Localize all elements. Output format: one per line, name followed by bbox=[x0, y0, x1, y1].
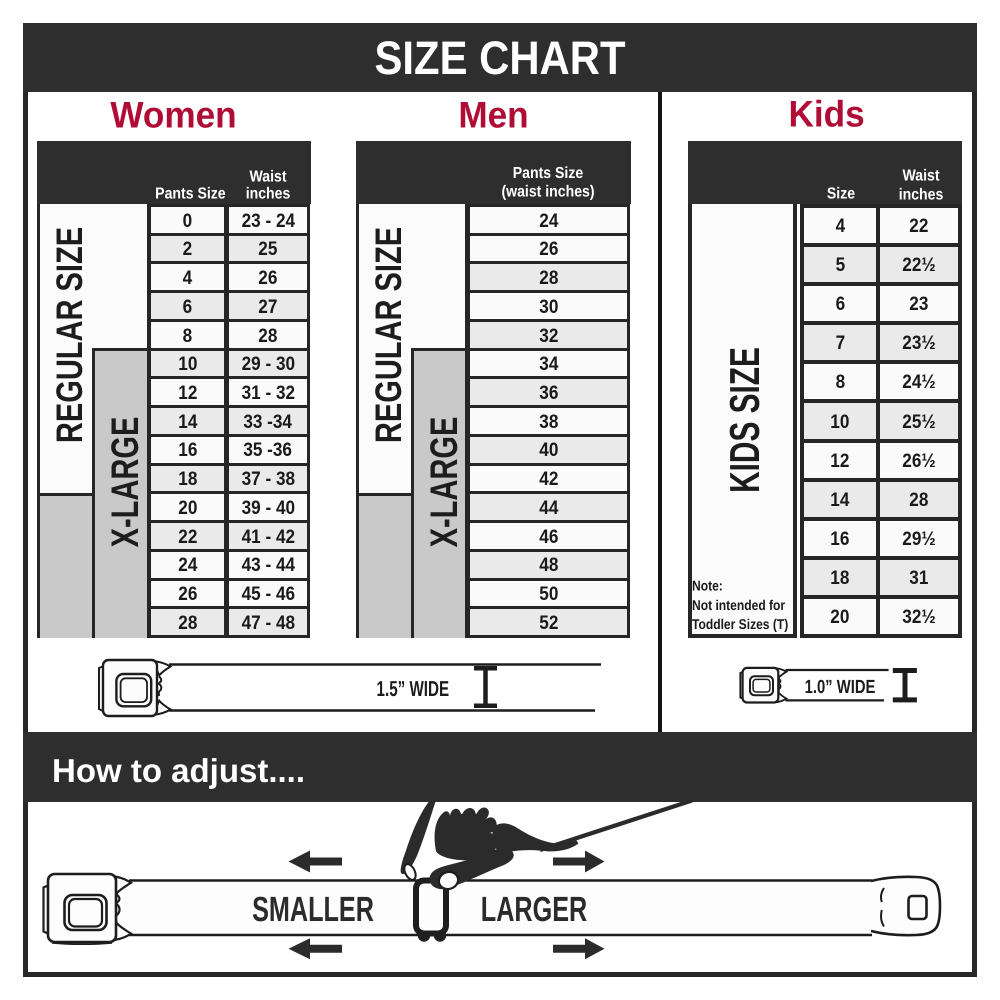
svg-text:Toddler Sizes (T): Toddler Sizes (T) bbox=[692, 617, 788, 633]
svg-text:X-LARGE: X-LARGE bbox=[423, 417, 466, 548]
svg-text:Waist: Waist bbox=[249, 169, 287, 186]
svg-text:Note:: Note: bbox=[692, 579, 723, 595]
svg-text:X-LARGE: X-LARGE bbox=[104, 417, 147, 548]
svg-text:inches: inches bbox=[899, 187, 944, 204]
svg-text:SMALLER: SMALLER bbox=[252, 890, 374, 929]
svg-text:Kids: Kids bbox=[789, 94, 865, 135]
svg-text:Men: Men bbox=[458, 95, 528, 136]
svg-text:1.5” WIDE: 1.5” WIDE bbox=[377, 676, 450, 701]
svg-text:Size: Size bbox=[827, 186, 855, 203]
svg-text:(waist inches): (waist inches) bbox=[501, 184, 594, 201]
svg-text:How to adjust....: How to adjust.... bbox=[52, 752, 305, 789]
svg-text:SIZE CHART: SIZE CHART bbox=[375, 31, 626, 84]
svg-text:Waist: Waist bbox=[902, 168, 940, 185]
svg-text:Pants Size: Pants Size bbox=[155, 186, 226, 203]
svg-text:Not intended for: Not intended for bbox=[692, 598, 786, 614]
svg-text:Women: Women bbox=[110, 95, 236, 136]
svg-text:LARGER: LARGER bbox=[481, 890, 587, 929]
svg-text:inches: inches bbox=[246, 186, 291, 203]
svg-text:REGULAR SIZE: REGULAR SIZE bbox=[49, 227, 90, 443]
svg-text:Pants Size: Pants Size bbox=[513, 165, 584, 182]
svg-text:REGULAR SIZE: REGULAR SIZE bbox=[368, 227, 409, 443]
svg-text:1.0” WIDE: 1.0” WIDE bbox=[805, 677, 876, 698]
svg-text:KIDS SIZE: KIDS SIZE bbox=[721, 347, 768, 493]
